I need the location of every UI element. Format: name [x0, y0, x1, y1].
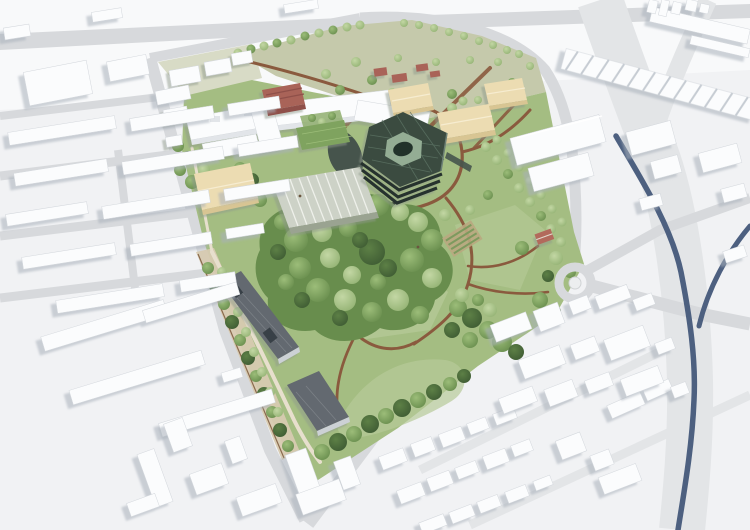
- roundabout-island: [569, 277, 581, 289]
- masterplan-render: [0, 0, 750, 530]
- masterplan-svg: [0, 0, 750, 530]
